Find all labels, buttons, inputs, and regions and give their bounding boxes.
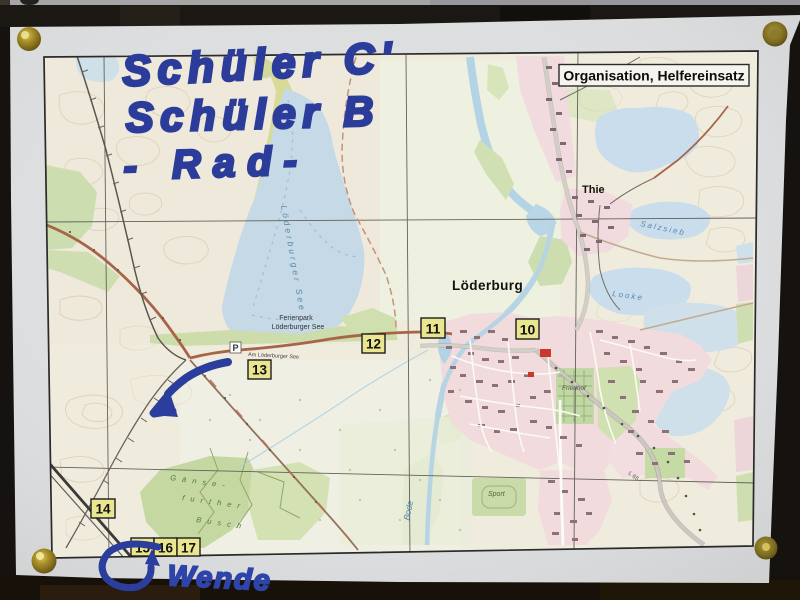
svg-text:Organisation, Helfereinsatz: Organisation, Helfereinsatz [563,68,744,84]
svg-text:12: 12 [366,337,381,352]
svg-text:Sport: Sport [488,491,506,498]
svg-text:11: 11 [426,321,441,337]
svg-text:17: 17 [181,541,196,556]
svg-text:- Rad-: - Rad- [123,139,310,189]
svg-text:Löderburg: Löderburg [452,278,523,293]
svg-text:Thie: Thie [582,184,605,196]
svg-text:Ferienpark: Ferienpark [279,315,313,322]
svg-text:Schüler B: Schüler B [125,87,381,141]
svg-text:Wende: Wende [167,560,273,597]
svg-text:13: 13 [252,363,268,378]
svg-text:14: 14 [95,502,111,517]
svg-text:P: P [233,343,239,353]
svg-text:Friedhof: Friedhof [562,385,587,392]
svg-text:Löderburger See: Löderburger See [272,324,325,331]
svg-text:10: 10 [520,322,536,338]
